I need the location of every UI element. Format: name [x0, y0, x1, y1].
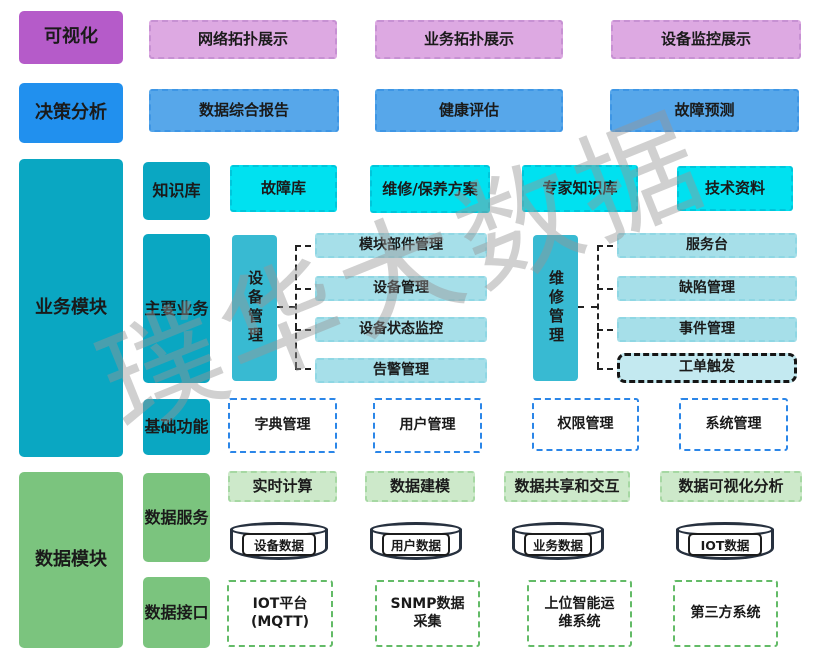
device-mgmt-connector-branch-3	[295, 329, 311, 331]
node-repair-maintenance-plan: 维修/保养方案	[370, 165, 490, 213]
node-device-mgmt: 设备管理	[315, 276, 487, 301]
device-mgmt-connector-branch-1	[295, 245, 311, 247]
database-business-data: 业务数据	[512, 522, 604, 560]
node-snmp-data-collection: SNMP数据采集	[375, 580, 480, 647]
node-expert-knowledge-base: 专家知识库	[522, 165, 638, 212]
repair-mgmt-connector-branch-3	[597, 329, 613, 331]
group-data-service-label: 数据服务	[143, 473, 210, 562]
node-device-monitor-display: 设备监控展示	[611, 20, 801, 59]
node-dictionary-mgmt: 字典管理	[228, 398, 337, 453]
node-iot-platform-mqtt: IOT平台 (MQTT)	[227, 580, 333, 647]
node-realtime-computing: 实时计算	[228, 471, 337, 502]
database-user-data: 用户数据	[370, 522, 462, 560]
node-defect-mgmt: 缺陷管理	[617, 276, 797, 301]
group-device-mgmt-label: 设备管理	[232, 235, 277, 381]
node-data-sharing-interaction: 数据共享和交互	[504, 471, 630, 502]
node-upper-intelligent-ops-system: 上位智能运维系统	[527, 580, 632, 647]
node-service-desk: 服务台	[617, 233, 797, 258]
layer-business-label: 业务模块	[19, 159, 123, 457]
group-knowledge-base-label: 知识库	[143, 162, 210, 220]
repair-mgmt-connector-branch-1	[597, 245, 613, 247]
database-device-data: 设备数据	[230, 522, 328, 560]
device-mgmt-connector-branch-2	[295, 288, 311, 290]
device-mgmt-connector-root	[277, 306, 295, 308]
repair-mgmt-connector-branch-2	[597, 288, 613, 290]
node-data-visual-analysis: 数据可视化分析	[660, 471, 802, 502]
node-system-mgmt: 系统管理	[679, 398, 788, 451]
database-iot-data: IOT数据	[676, 522, 774, 560]
database-business-data-label: 业务数据	[524, 533, 592, 556]
node-health-assessment: 健康评估	[375, 89, 563, 132]
node-permission-mgmt: 权限管理	[532, 398, 639, 451]
repair-mgmt-connector-root	[578, 306, 597, 308]
repair-mgmt-connector-spine	[597, 245, 599, 368]
architecture-diagram: 可视化 决策分析 业务模块 数据模块 网络拓扑展示 业务拓扑展示 设备监控展示 …	[0, 0, 822, 671]
device-mgmt-connector-branch-4	[295, 368, 311, 370]
layer-decision-label: 决策分析	[19, 83, 123, 143]
node-business-topology-display: 业务拓扑展示	[375, 20, 563, 59]
node-user-mgmt: 用户管理	[373, 398, 482, 453]
node-device-status-monitor: 设备状态监控	[315, 317, 487, 342]
node-fault-prediction: 故障预测	[610, 89, 799, 132]
node-data-comprehensive-report: 数据综合报告	[149, 89, 339, 132]
database-iot-data-label: IOT数据	[688, 533, 762, 556]
layer-data-label: 数据模块	[19, 472, 123, 648]
group-repair-mgmt-label: 维修管理	[533, 235, 578, 381]
node-network-topology-display: 网络拓扑展示	[149, 20, 337, 59]
node-data-modeling: 数据建模	[365, 471, 475, 502]
database-user-data-label: 用户数据	[382, 533, 450, 556]
node-fault-library: 故障库	[230, 165, 337, 212]
group-data-interface-label: 数据接口	[143, 577, 210, 648]
layer-visualization-label: 可视化	[19, 11, 123, 64]
node-event-mgmt: 事件管理	[617, 317, 797, 342]
device-mgmt-connector-spine	[295, 245, 297, 368]
database-device-data-label: 设备数据	[242, 533, 316, 556]
repair-mgmt-connector-branch-4	[597, 368, 613, 370]
node-technical-documents: 技术资料	[677, 166, 793, 211]
node-alarm-mgmt: 告警管理	[315, 358, 487, 383]
group-main-business-label: 主要业务	[143, 234, 210, 383]
group-basic-functions-label: 基础功能	[143, 399, 210, 455]
node-third-party-system: 第三方系统	[673, 580, 778, 647]
node-work-order-trigger: 工单触发	[617, 353, 797, 383]
node-module-parts-mgmt: 模块部件管理	[315, 233, 487, 258]
